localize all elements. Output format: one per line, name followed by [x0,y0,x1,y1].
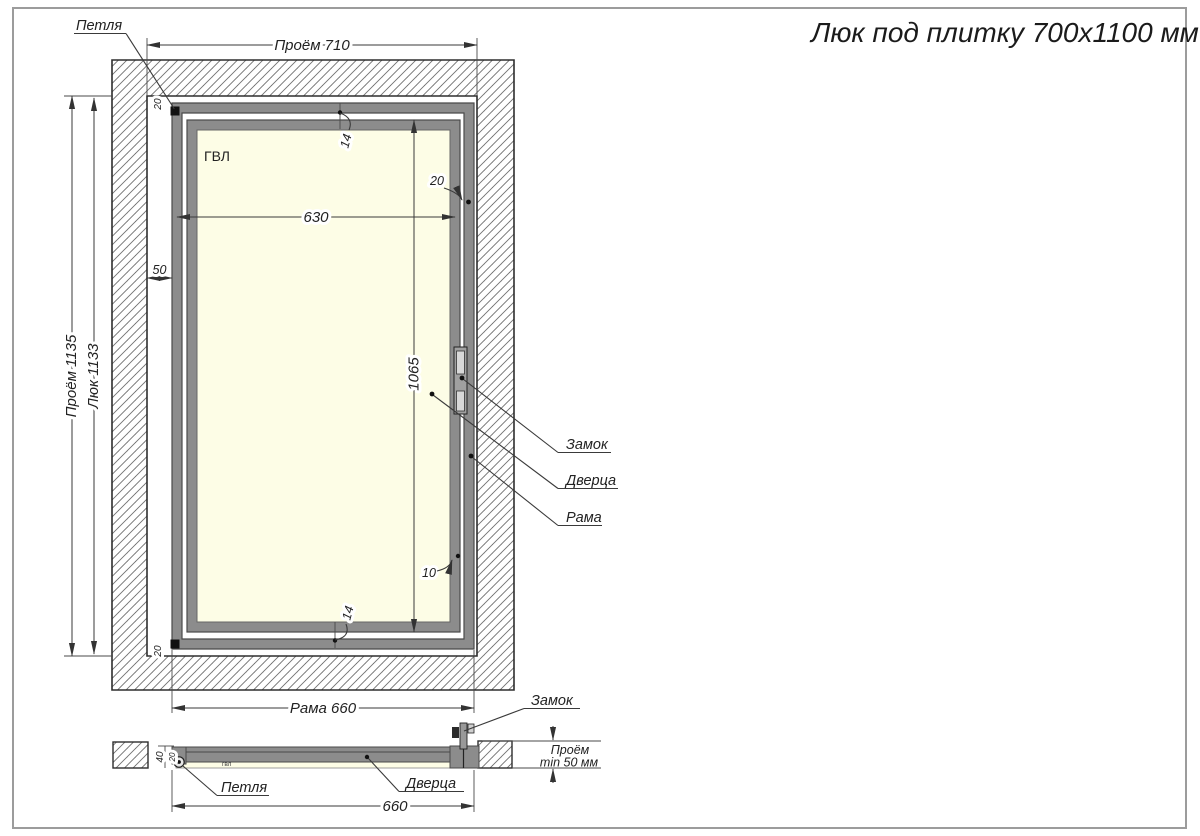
svg-text:20: 20 [429,174,444,188]
section-material-label: гвл [222,761,232,768]
material-label-gvl: ГВЛ [204,148,230,164]
svg-text:10: 10 [422,566,436,580]
svg-text:Замок: Замок [531,693,574,709]
svg-text:Проём 710: Проём 710 [274,37,350,54]
section-callout-hinge: Петля [183,766,269,796]
svg-text:Рама 660: Рама 660 [290,700,357,717]
dim-hinge-bottom-inset: 20 [153,645,164,658]
svg-text:Петля: Петля [76,18,122,34]
dim-hatch-height: Люк 1133 [85,98,102,654]
svg-text:50: 50 [153,263,167,277]
svg-text:1065: 1065 [406,357,423,391]
svg-text:Проём 1135: Проём 1135 [63,334,80,417]
drawing-canvas: Люк под плитку 700х1100 мм ГВЛ Проём 710 [0,0,1200,836]
svg-text:660: 660 [382,798,408,815]
front-view: ГВЛ Проём 710 Проём 1135 Люк 1133 630 [63,18,618,717]
drawing-title: Люк под плитку 700х1100 мм [809,17,1199,48]
svg-text:Дверца: Дверца [564,473,616,489]
svg-text:Дверца: Дверца [404,776,456,792]
dim-section-hinge-inset: 20 [168,752,177,762]
svg-text:Люк 1133: Люк 1133 [85,343,102,410]
section-view: гвл 40 20 Замок Проём min 50 мм Петля [113,693,601,815]
section-callout-lock: Замок [464,693,580,731]
svg-text:Петля: Петля [221,780,267,796]
section-wall-left [113,742,148,768]
svg-text:40: 40 [155,751,166,763]
hinge-bottom [171,640,180,649]
section-wall-right [478,741,512,768]
dim-side-gap: 50 [147,263,172,278]
svg-text:min 50 мм: min 50 мм [540,756,599,770]
drawing-page: Люк под плитку 700х1100 мм ГВЛ Проём 710 [0,0,1200,836]
svg-text:630: 630 [303,209,329,226]
svg-text:Рама: Рама [566,510,602,526]
svg-text:Замок: Замок [566,437,609,453]
dim-hinge-top-inset: 20 [153,98,164,111]
